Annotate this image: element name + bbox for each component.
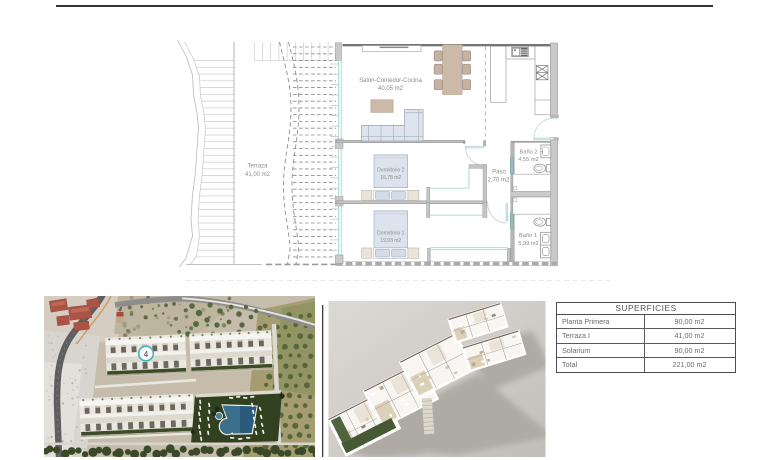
svg-text:40,05 m2: 40,05 m2 — [378, 86, 404, 92]
svg-text:41,00 m2: 41,00 m2 — [245, 172, 271, 178]
svg-text:4: 4 — [144, 349, 149, 359]
svg-text:Salón-Comedor-Cocina: Salón-Comedor-Cocina — [359, 78, 422, 84]
svg-text:5,99 m2: 5,99 m2 — [518, 241, 539, 247]
svg-text:Baño 1: Baño 1 — [519, 233, 537, 239]
svg-text:2,70 m2: 2,70 m2 — [488, 178, 510, 184]
svg-text:19,93 m2: 19,93 m2 — [380, 238, 401, 244]
svg-text:Dormitorio 1: Dormitorio 1 — [377, 231, 404, 237]
svg-text:Terraza: Terraza — [247, 164, 268, 170]
svg-text:16,78 m2: 16,78 m2 — [380, 175, 401, 181]
svg-text:Dormitorio 2: Dormitorio 2 — [377, 168, 404, 174]
svg-text:4,55 m2: 4,55 m2 — [518, 157, 539, 163]
svg-text:Baño 2: Baño 2 — [519, 150, 537, 156]
svg-text:Paso: Paso — [492, 170, 506, 176]
